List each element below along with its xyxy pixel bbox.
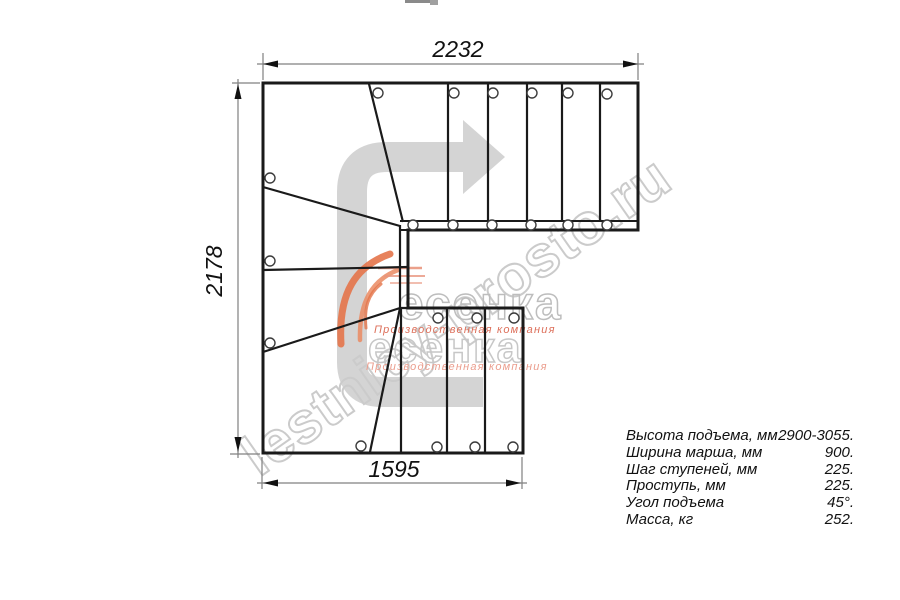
specs-row: Ширина марша, мм 900. [626, 445, 854, 462]
screw-hole [432, 442, 442, 452]
dimension-arrow-icon [263, 61, 278, 68]
dimension-bottom: 1595 [257, 456, 527, 489]
specs-row: Высота подъема, мм 2900-3055. [626, 428, 854, 445]
screw-hole [433, 313, 443, 323]
screw-hole [449, 88, 459, 98]
screw-hole [408, 220, 418, 230]
spec-value: 225. [825, 478, 854, 495]
spec-value: 900. [825, 445, 854, 462]
screw-hole [373, 88, 383, 98]
specs-row: Угол подъема 45°. [626, 495, 854, 512]
spec-label: Угол подъема [626, 495, 724, 512]
screw-hole [265, 173, 275, 183]
specs-table: Высота подъема, мм 2900-3055. Ширина мар… [626, 428, 854, 529]
screw-hole [448, 220, 458, 230]
screw-hole [563, 88, 573, 98]
stair-drawing-page: lestnicy-prosto.ru есенка Производственн… [0, 0, 900, 600]
spec-label: Проступь, мм [626, 478, 726, 495]
screw-hole [265, 338, 275, 348]
spec-label: Масса, кг [626, 512, 693, 529]
dimension-left: 2178 [201, 79, 260, 458]
screw-hole [265, 256, 275, 266]
specs-row: Шаг ступеней, мм 225. [626, 462, 854, 479]
dimension-arrow-icon [235, 84, 242, 99]
dimension-arrow-icon [506, 480, 521, 487]
spec-value: 252. [825, 512, 854, 529]
dimension-arrow-icon [263, 480, 278, 487]
spec-value: 225. [825, 462, 854, 479]
winder-tread-dividers [263, 187, 408, 452]
dimension-left-value: 2178 [201, 245, 227, 297]
screw-hole [563, 220, 573, 230]
screw-hole [602, 220, 612, 230]
dimension-arrow-icon [623, 61, 638, 68]
screw-hole [508, 442, 518, 452]
cropped-title-artifact [430, 0, 438, 5]
lower-flight-tread-dividers [400, 308, 485, 452]
screw-hole [356, 441, 366, 451]
upper-flight-tread-dividers [369, 84, 600, 222]
screw-holes [265, 88, 612, 452]
screw-hole [509, 313, 519, 323]
spec-label: Шаг ступеней, мм [626, 462, 757, 479]
screw-hole [602, 89, 612, 99]
dimension-top-value: 2232 [431, 36, 483, 62]
screw-hole [472, 313, 482, 323]
spec-value: 2900-3055. [778, 428, 854, 445]
spec-value: 45°. [827, 495, 854, 512]
screw-hole [487, 220, 497, 230]
dimension-top: 2232 [232, 36, 644, 83]
screw-hole [526, 220, 536, 230]
dimension-arrow-icon [235, 437, 242, 452]
screw-hole [488, 88, 498, 98]
dimension-bottom-value: 1595 [368, 456, 419, 482]
screw-hole [470, 442, 480, 452]
screw-hole [527, 88, 537, 98]
spec-label: Высота подъема, мм [626, 428, 778, 445]
spec-label: Ширина марша, мм [626, 445, 762, 462]
specs-row: Проступь, мм 225. [626, 478, 854, 495]
specs-row: Масса, кг 252. [626, 512, 854, 529]
